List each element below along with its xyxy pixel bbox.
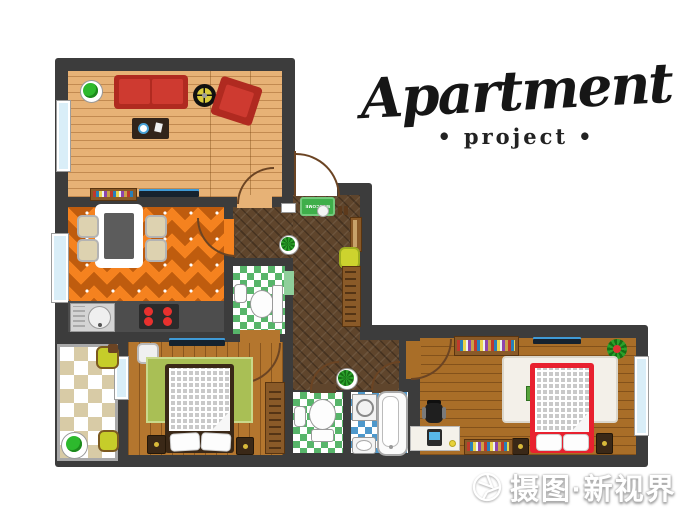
mirror-glass xyxy=(353,220,357,247)
subtitle-text: project xyxy=(464,124,568,149)
chair-seat xyxy=(425,403,443,423)
burner xyxy=(163,317,172,326)
subtitle-dot: • xyxy=(568,124,604,149)
books xyxy=(457,340,515,351)
nightstand xyxy=(512,438,529,455)
potted-plant xyxy=(80,80,103,103)
apartment-floor-plan-illustration: WELCOME xyxy=(0,0,700,525)
bedroom2-tv xyxy=(533,337,581,344)
corridor-plant xyxy=(336,368,358,390)
tv-panel xyxy=(139,189,199,197)
dining-chair xyxy=(145,239,167,262)
knob xyxy=(518,444,523,449)
bathroom-sink xyxy=(352,437,376,454)
entry-shelf xyxy=(281,203,296,213)
stock-watermark: 摄图·新视界 xyxy=(470,466,677,508)
nightstand xyxy=(236,437,254,455)
kitchen-sink xyxy=(70,303,115,332)
wall-shelf xyxy=(454,336,519,356)
hangers xyxy=(345,270,356,322)
nightstand xyxy=(147,435,166,454)
corridor-plant xyxy=(279,235,299,255)
knob xyxy=(243,444,248,449)
toilet-tank xyxy=(311,429,334,442)
plant-leaves xyxy=(83,83,98,98)
bedroom1-door-opening xyxy=(240,330,280,343)
coat-hook xyxy=(344,206,348,215)
books xyxy=(93,191,133,197)
dining-chair xyxy=(77,215,99,238)
magazine xyxy=(154,122,163,132)
title-block: Apartment •project• xyxy=(360,58,672,149)
faucet xyxy=(98,323,102,327)
sofa-cushion xyxy=(152,79,183,104)
tub-drain xyxy=(389,445,393,449)
sofa xyxy=(114,75,188,109)
drainer xyxy=(73,306,85,327)
burner xyxy=(144,307,153,316)
dining-chair xyxy=(77,239,99,262)
page-title: Apartment xyxy=(358,50,673,132)
knob xyxy=(154,442,159,447)
bedroom2-window xyxy=(634,356,649,436)
red-double-bed xyxy=(530,363,594,453)
armrest xyxy=(422,407,426,419)
round-sticker xyxy=(317,205,329,217)
toilet-bowl xyxy=(309,399,336,430)
pillow xyxy=(170,432,201,452)
washing-machine xyxy=(352,394,377,421)
entrance-door-leaf xyxy=(294,151,296,196)
dining-chair xyxy=(145,215,167,238)
pillow xyxy=(563,434,589,451)
coffee-table xyxy=(132,118,169,139)
books xyxy=(467,442,509,451)
ashtray xyxy=(138,123,149,134)
camera-aperture-icon xyxy=(470,470,504,504)
table-top xyxy=(104,213,134,259)
pillow xyxy=(536,434,562,451)
double-bed xyxy=(165,364,234,453)
nightstand xyxy=(596,433,613,454)
wc-sink xyxy=(234,284,247,303)
washer-drum xyxy=(356,399,374,417)
toilet-tank xyxy=(272,285,283,323)
desk xyxy=(410,426,460,451)
kitchen-window xyxy=(51,233,69,303)
bedroom1-tv xyxy=(169,338,225,346)
armrest xyxy=(442,407,446,419)
coat-hook xyxy=(338,206,342,215)
clock-hub xyxy=(202,93,207,98)
pillow xyxy=(201,432,232,452)
office-chair xyxy=(422,400,446,426)
plant-pot xyxy=(613,345,621,353)
living-room-window xyxy=(56,100,71,172)
stove xyxy=(139,304,179,329)
tub-basin xyxy=(382,396,399,447)
watermark-text: 摄图·新视界 xyxy=(510,466,677,508)
armchair-seat xyxy=(219,84,255,118)
bookshelf xyxy=(90,188,137,201)
wc-sink xyxy=(294,406,306,427)
bedroom1-wardrobe xyxy=(265,382,285,454)
plant-leaves xyxy=(281,237,295,251)
laptop-screen xyxy=(429,432,440,440)
balcony-table xyxy=(108,344,118,353)
wc1-door-opening xyxy=(284,271,294,295)
dining-table xyxy=(95,204,143,268)
plant-leaves xyxy=(338,370,354,386)
hall-wardrobe xyxy=(342,266,361,327)
sink-basin xyxy=(356,440,372,451)
bathtub xyxy=(377,391,408,456)
burner xyxy=(163,307,172,316)
mouse xyxy=(449,440,456,447)
hangers xyxy=(269,387,281,449)
toilet-bowl xyxy=(250,290,274,318)
knob xyxy=(602,441,607,446)
low-bookshelf xyxy=(464,439,513,455)
burner xyxy=(144,317,153,326)
entrance-door-arc xyxy=(296,153,340,197)
balcony-plant xyxy=(61,432,88,459)
plant-leaves xyxy=(66,436,82,452)
sofa-cushion xyxy=(119,79,150,104)
balcony-chair xyxy=(98,430,119,452)
